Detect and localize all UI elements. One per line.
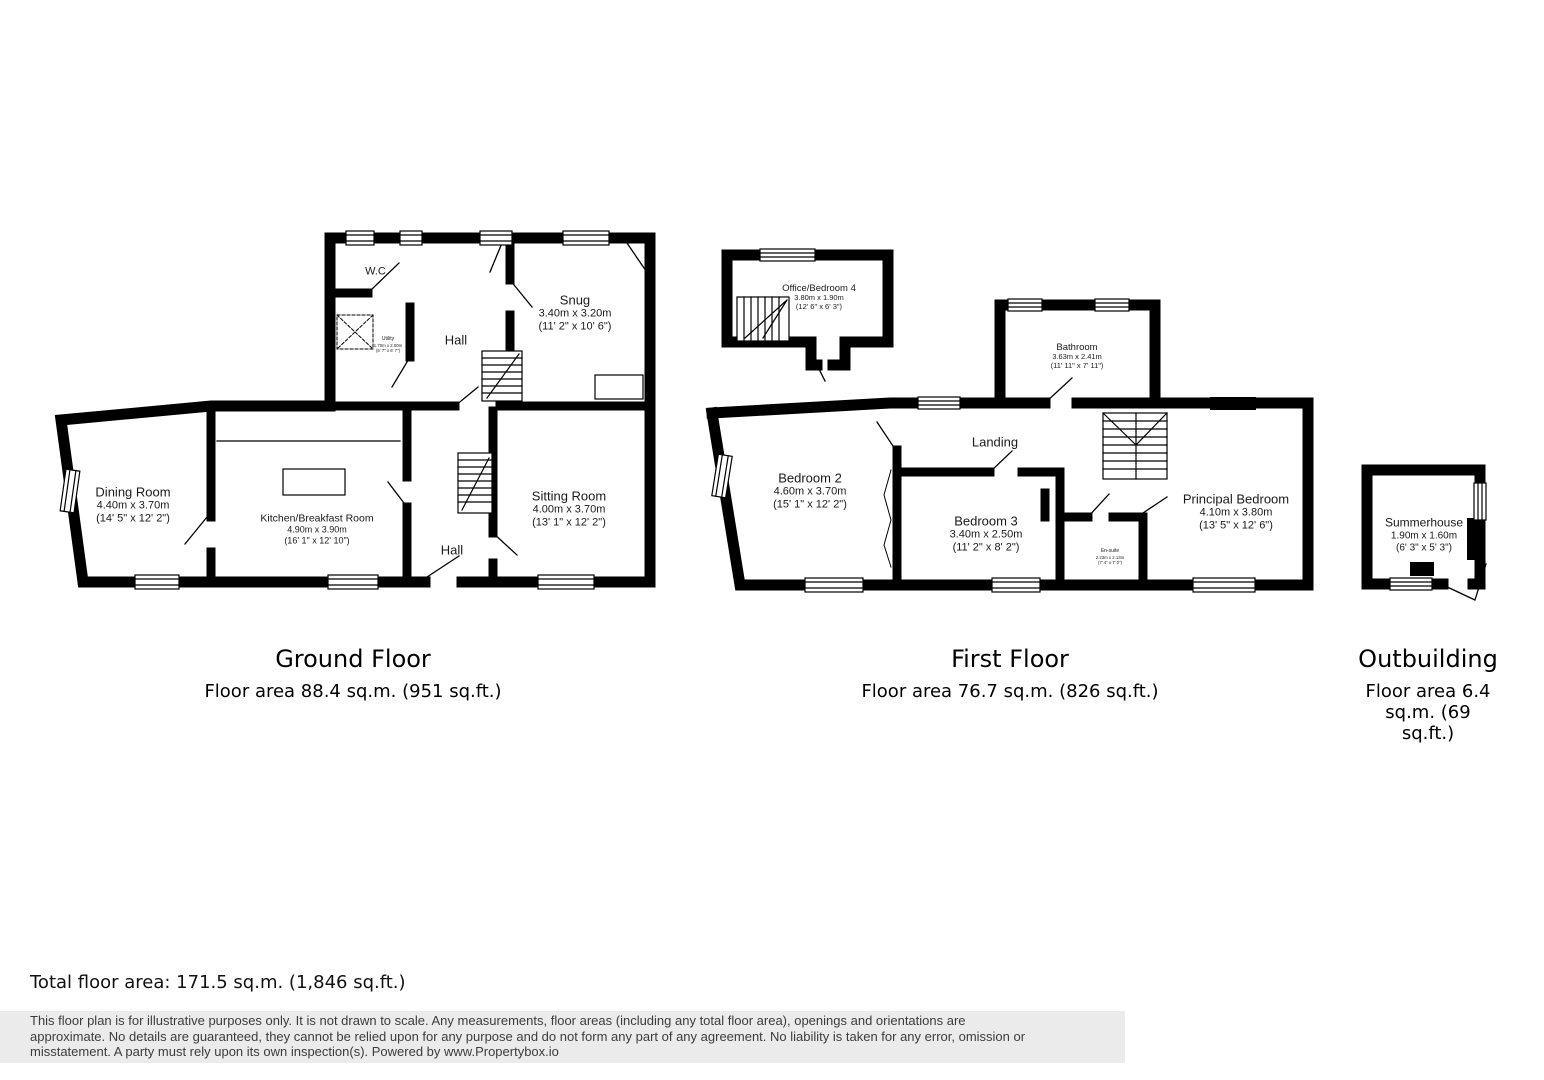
room-name: W.C. — [365, 266, 389, 279]
room-name: Bedroom 3 — [950, 514, 1023, 529]
room-name: Sitting Room — [532, 489, 606, 504]
room-dimensions-metric: 3.40m x 3.20m — [539, 308, 612, 321]
bedroom2-wardrobe-line — [884, 470, 891, 567]
disclaimer-line-2: approximate. No details are guaranteed, … — [30, 1029, 1130, 1045]
room-label-principal-bedroom: Principal Bedroom 4.10m x 3.80m (13' 5" … — [1183, 492, 1289, 533]
room-label-utility: Utility 1.70m x 2.00m (5' 7" x 6' 7") — [374, 337, 402, 353]
first-floor-area: Floor area 76.7 sq.m. (826 sq.ft.) — [861, 681, 1158, 702]
outbuilding-title: Outbuilding — [1358, 645, 1498, 673]
room-name: Principal Bedroom — [1183, 492, 1289, 507]
ground-floor-area: Floor area 88.4 sq.m. (951 sq.ft.) — [204, 681, 501, 702]
room-dimensions-metric: 1.90m x 1.60m — [1385, 530, 1463, 542]
staircase-hall-lower — [458, 453, 492, 513]
room-dimensions-imperial: (5' 7" x 6' 7") — [374, 348, 402, 353]
room-dimensions-metric: 4.00m x 3.70m — [532, 504, 606, 517]
room-name: Bedroom 2 — [773, 471, 847, 486]
room-dimensions-metric: 4.90m x 3.90m — [260, 525, 373, 535]
staircase-hall-upper — [482, 351, 522, 401]
room-name: Snug — [539, 293, 612, 308]
room-dimensions-imperial: (15' 1" x 12' 2") — [773, 499, 847, 512]
chimney-breast — [1210, 397, 1256, 410]
outbuilding-wall-pier — [1467, 518, 1481, 560]
room-label-ensuite: En-suite 2.23m x 2.13m (7' 4" x 7' 0") — [1096, 549, 1124, 565]
room-dimensions-metric: 4.60m x 3.70m — [773, 486, 847, 499]
staircase-landing — [1103, 413, 1167, 479]
room-dimensions-imperial: (16' 1" x 12' 10") — [260, 535, 373, 545]
outbuilding-step — [1410, 562, 1434, 576]
disclaimer-line-1: This floor plan is for illustrative purp… — [30, 1013, 1130, 1029]
room-label-wc: W.C. — [365, 266, 389, 279]
room-label-summerhouse: Summerhouse 1.90m x 1.60m (6' 3" x 5' 3"… — [1385, 516, 1463, 553]
room-label-office-bedroom4: Office/Bedroom 4 3.80m x 1.90m (12' 6" x… — [782, 283, 856, 311]
room-dimensions-metric: 4.10m x 3.80m — [1183, 507, 1289, 520]
room-name: Landing — [972, 434, 1018, 449]
room-label-snug: Snug 3.40m x 3.20m (11' 2" x 10' 6") — [539, 293, 612, 334]
first-floor-title: First Floor — [951, 645, 1069, 673]
room-dimensions-imperial: (6' 3" x 5' 3") — [1385, 542, 1463, 554]
room-dimensions-imperial: (11' 2" x 10' 6") — [539, 321, 612, 334]
kitchen-counter — [217, 375, 643, 495]
room-label-hall-lower: Hall — [441, 542, 463, 557]
utility-fixtures — [337, 315, 373, 349]
room-label-bedroom3: Bedroom 3 3.40m x 2.50m (11' 2" x 8' 2") — [950, 514, 1023, 555]
room-label-dining: Dining Room 4.40m x 3.70m (14' 5" x 12' … — [95, 485, 170, 526]
room-label-hall-upper: Hall — [445, 332, 467, 347]
room-name: Kitchen/Breakfast Room — [260, 512, 373, 524]
ground-floor-title: Ground Floor — [275, 645, 431, 673]
room-dimensions-imperial: (11' 11" x 7' 11") — [1051, 362, 1104, 371]
disclaimer-text: This floor plan is for illustrative purp… — [30, 1013, 1130, 1060]
room-label-kitchen: Kitchen/Breakfast Room 4.90m x 3.90m (16… — [260, 512, 373, 545]
room-name: Summerhouse — [1385, 516, 1463, 530]
room-dimensions-metric: 4.40m x 3.70m — [95, 500, 170, 513]
room-name: Hall — [441, 542, 463, 557]
room-dimensions-imperial: (14' 5" x 12' 2") — [95, 513, 170, 526]
room-dimensions-imperial: (11' 2" x 8' 2") — [950, 542, 1023, 555]
floor-plan-image: W.C. Utility 1.70m x 2.00m (5' 7" x 6' 7… — [0, 0, 1544, 1080]
room-label-sitting: Sitting Room 4.00m x 3.70m (13' 1" x 12'… — [532, 489, 606, 530]
room-label-landing: Landing — [972, 434, 1018, 449]
room-dimensions-imperial: (7' 4" x 7' 0") — [1096, 560, 1124, 565]
room-dimensions-imperial: (12' 6" x 6' 3") — [782, 303, 856, 312]
total-floor-area: Total floor area: 171.5 sq.m. (1,846 sq.… — [30, 972, 406, 993]
room-dimensions-imperial: (13' 5" x 12' 6") — [1183, 520, 1289, 533]
outbuilding-area: Floor area 6.4 sq.m. (69 sq.ft.) — [1363, 681, 1493, 744]
room-label-bathroom: Bathroom 3.63m x 2.41m (11' 11" x 7' 11"… — [1051, 342, 1104, 370]
room-name: Hall — [445, 332, 467, 347]
room-dimensions-metric: 3.40m x 2.50m — [950, 529, 1023, 542]
room-dimensions-imperial: (13' 1" x 12' 2") — [532, 517, 606, 530]
room-label-bedroom2: Bedroom 2 4.60m x 3.70m (15' 1" x 12' 2"… — [773, 471, 847, 512]
disclaimer-line-3: misstatement. A party must rely upon its… — [30, 1044, 1130, 1060]
room-name: Dining Room — [95, 485, 170, 500]
